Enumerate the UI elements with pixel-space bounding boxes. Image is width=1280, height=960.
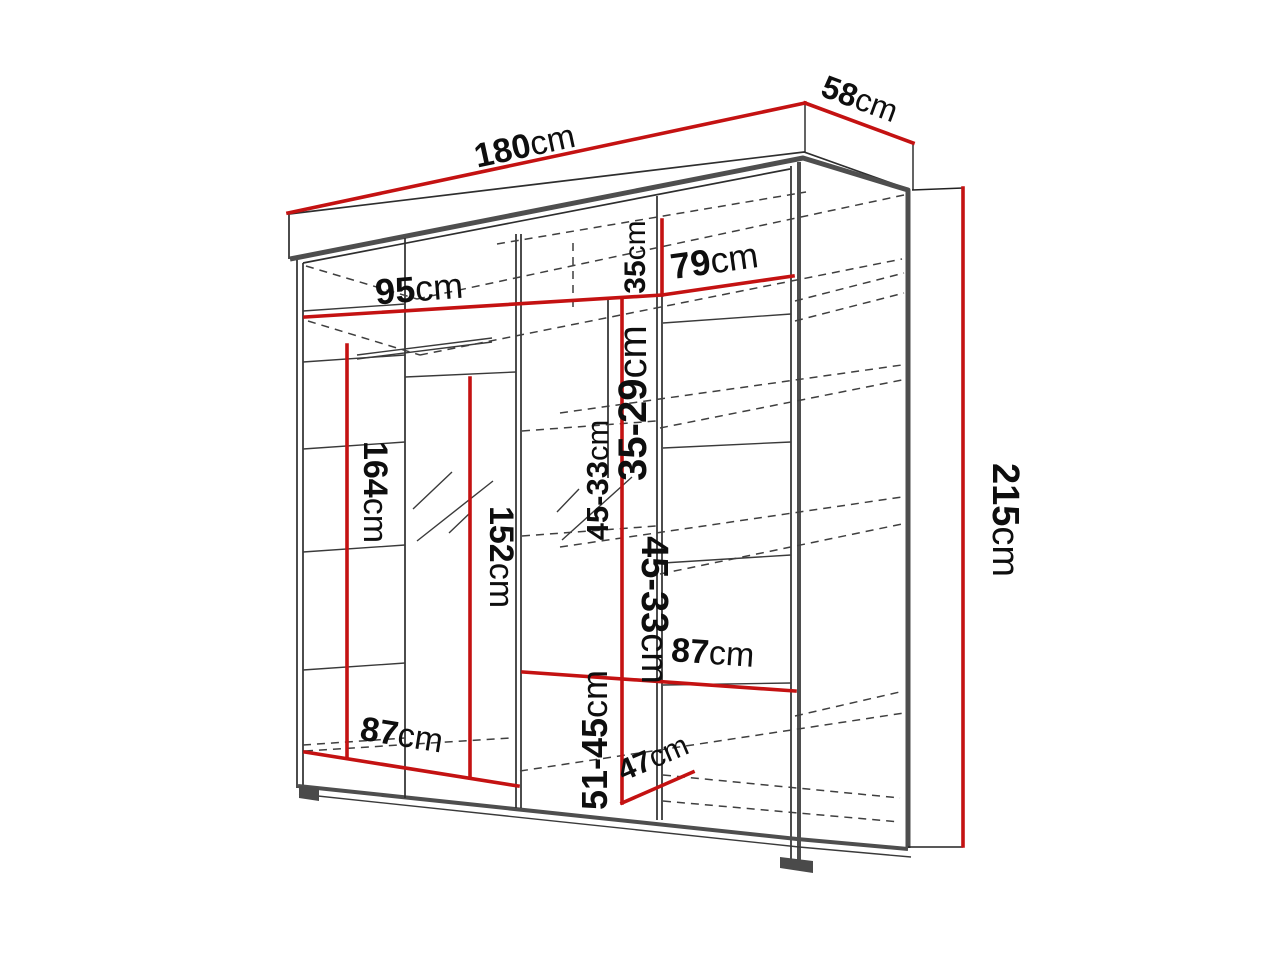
dim-label-total-depth: 58cm <box>817 68 903 129</box>
dim-label-lower-shelf-width: 87cm <box>358 710 446 761</box>
wardrobe-feet <box>299 786 813 873</box>
dimension-line-lower-shelf-width <box>305 752 518 786</box>
front-left-edge <box>297 260 303 788</box>
dim-label-upper-shelf-spacing: 35-29cm <box>611 325 655 481</box>
dim-label-total-height: 215cm <box>984 463 1026 577</box>
dim-label-left-section-height: 164cm <box>356 441 394 543</box>
extension-lines <box>805 103 963 847</box>
dim-label-middle-shelf-spacing-a: 45-33cm <box>580 420 615 541</box>
dim-label-interior-width-left: 95cm <box>374 265 465 313</box>
dim-label-bottom-section-height: 51-45cm <box>574 670 615 810</box>
wardrobe-dimension-diagram: 180cm 58cm 215cm 95cm 79cm 35cm 35-29cm … <box>0 0 1280 960</box>
dim-label-mirror-door-height: 152cm <box>482 506 520 608</box>
dim-label-middle-shelf-spacing-b: 45-33cm <box>633 536 675 684</box>
dim-label-top-section-height: 35cm <box>619 220 652 293</box>
hanging-rail <box>357 338 492 359</box>
wardrobe-diagram-page: 180cm 58cm 215cm 95cm 79cm 35cm 35-29cm … <box>0 0 1280 960</box>
dim-label-total-width: 180cm <box>471 117 579 176</box>
dim-label-right-shelf-width: 87cm <box>670 631 756 675</box>
